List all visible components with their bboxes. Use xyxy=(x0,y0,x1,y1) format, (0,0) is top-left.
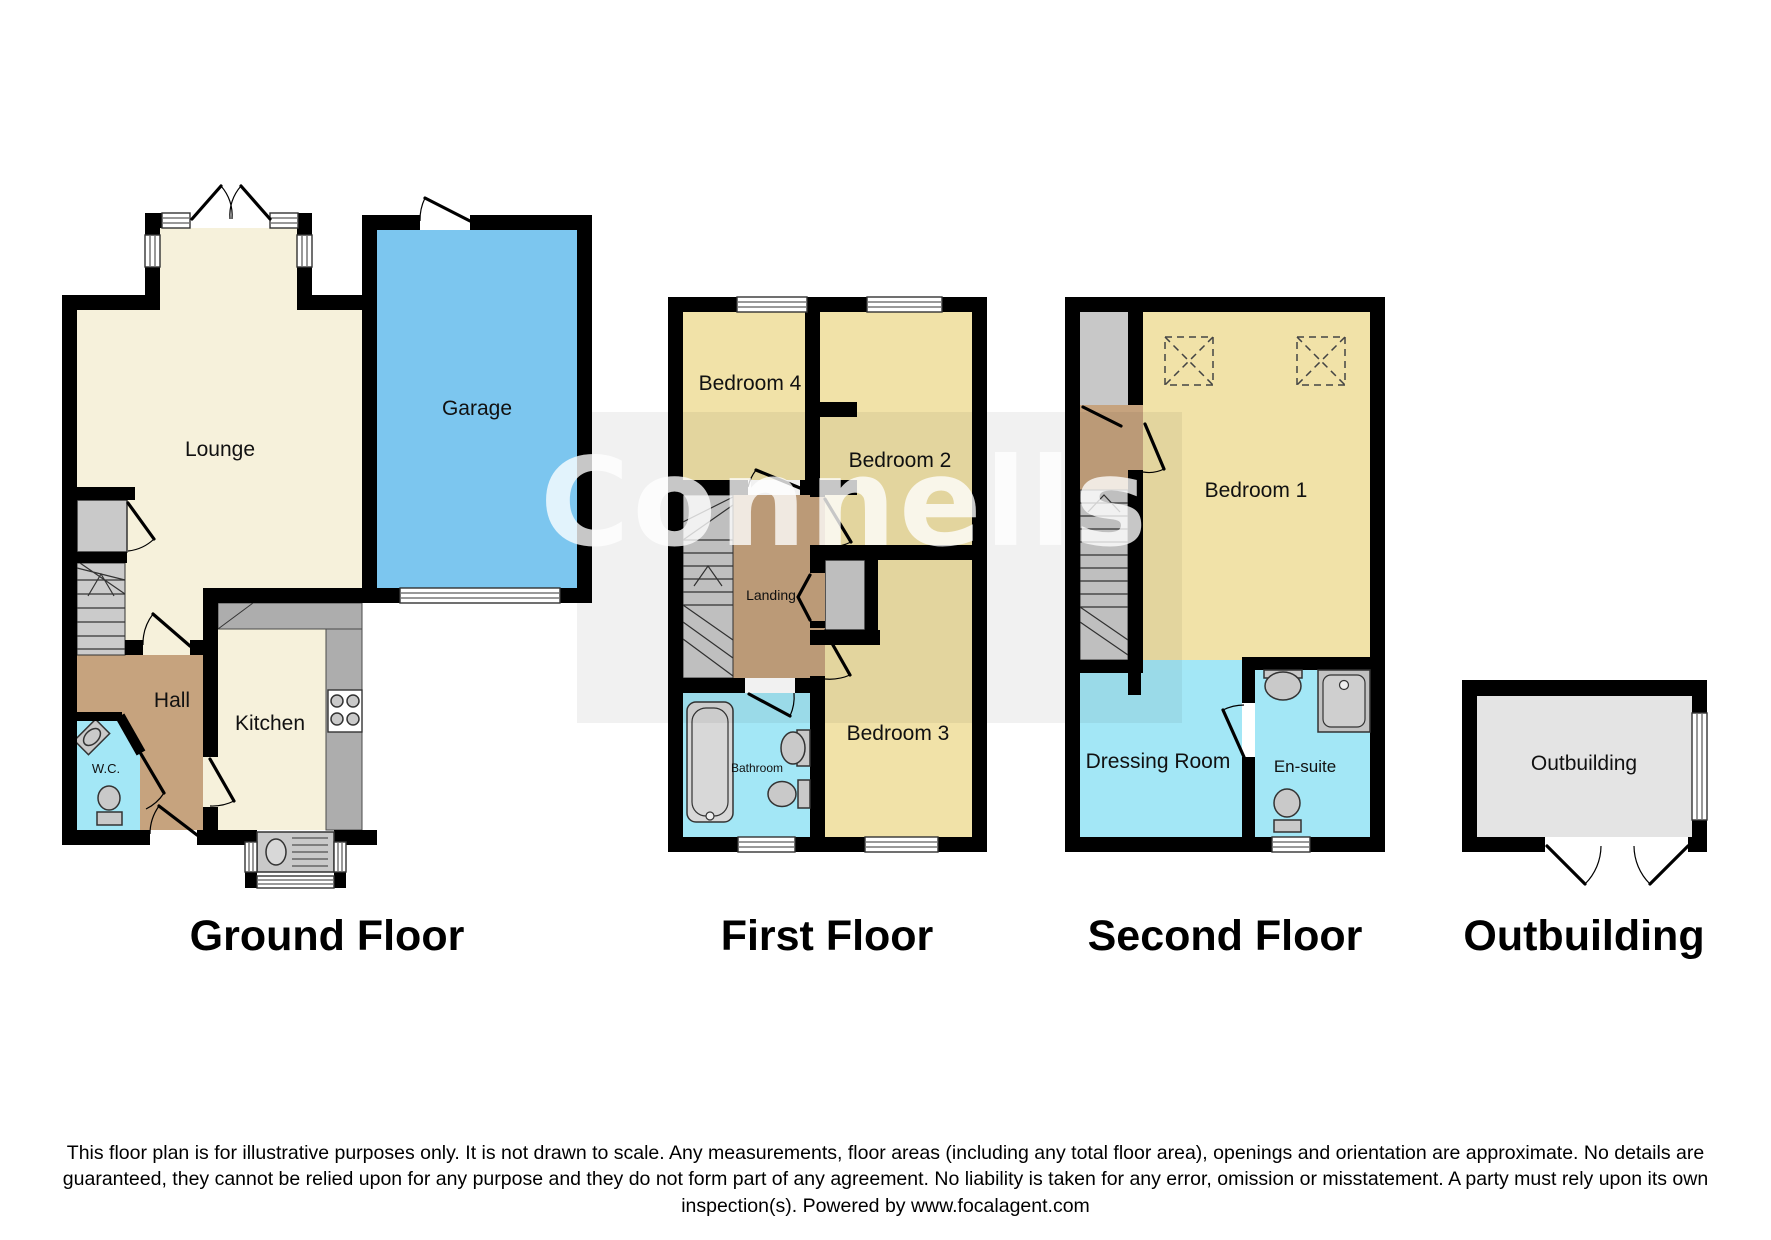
room-label-bedroom3: Bedroom 3 xyxy=(847,722,950,745)
stair-void xyxy=(1080,312,1128,405)
toilet-icon xyxy=(768,780,810,808)
room-label-garage: Garage xyxy=(442,397,512,420)
floor-title-outbuilding: Outbuilding xyxy=(1463,912,1704,960)
room-label-bedroom1: Bedroom 1 xyxy=(1205,479,1308,502)
door-swings xyxy=(1547,846,1688,884)
room-label-lounge: Lounge xyxy=(185,438,255,461)
floorplan-canvas: Lounge Garage Hall Kitchen W.C. xyxy=(0,0,1771,1240)
floor-title-second: Second Floor xyxy=(1088,912,1363,960)
sink-icon xyxy=(781,730,810,766)
shower-icon xyxy=(1318,670,1370,732)
room-label-wc: W.C. xyxy=(92,761,120,776)
sink-icon xyxy=(1264,670,1302,700)
room-label-bedroom4: Bedroom 4 xyxy=(699,372,802,395)
ground-floor-plan: Lounge Garage Hall Kitchen W.C. xyxy=(62,186,592,888)
room-label-hall: Hall xyxy=(154,689,190,712)
sink-icon xyxy=(257,832,334,872)
hob-icon xyxy=(328,690,362,732)
storage-cupboard xyxy=(77,500,127,552)
windows xyxy=(1692,713,1707,820)
watermark: Connells xyxy=(540,412,1182,723)
toilet-icon xyxy=(1274,789,1301,832)
room-label-bathroom: Bathroom xyxy=(731,761,783,775)
floor-title-ground: Ground Floor xyxy=(190,912,465,960)
disclaimer-text: This floor plan is for illustrative purp… xyxy=(30,1140,1741,1219)
toilet-icon xyxy=(97,786,122,825)
stairs-icon xyxy=(77,563,125,655)
outbuilding-plan: Outbuilding xyxy=(1462,680,1707,884)
floorplan-svg: Lounge Garage Hall Kitchen W.C. xyxy=(0,0,1771,1240)
room-label-dressing-room: Dressing Room xyxy=(1086,750,1231,773)
room-label-kitchen: Kitchen xyxy=(235,712,305,735)
room-label-outbuilding: Outbuilding xyxy=(1531,752,1637,775)
windows xyxy=(1272,837,1310,852)
floor-title-first: First Floor xyxy=(721,912,934,960)
watermark-text: Connells xyxy=(540,432,1150,574)
room-label-ensuite: En-suite xyxy=(1274,757,1336,776)
